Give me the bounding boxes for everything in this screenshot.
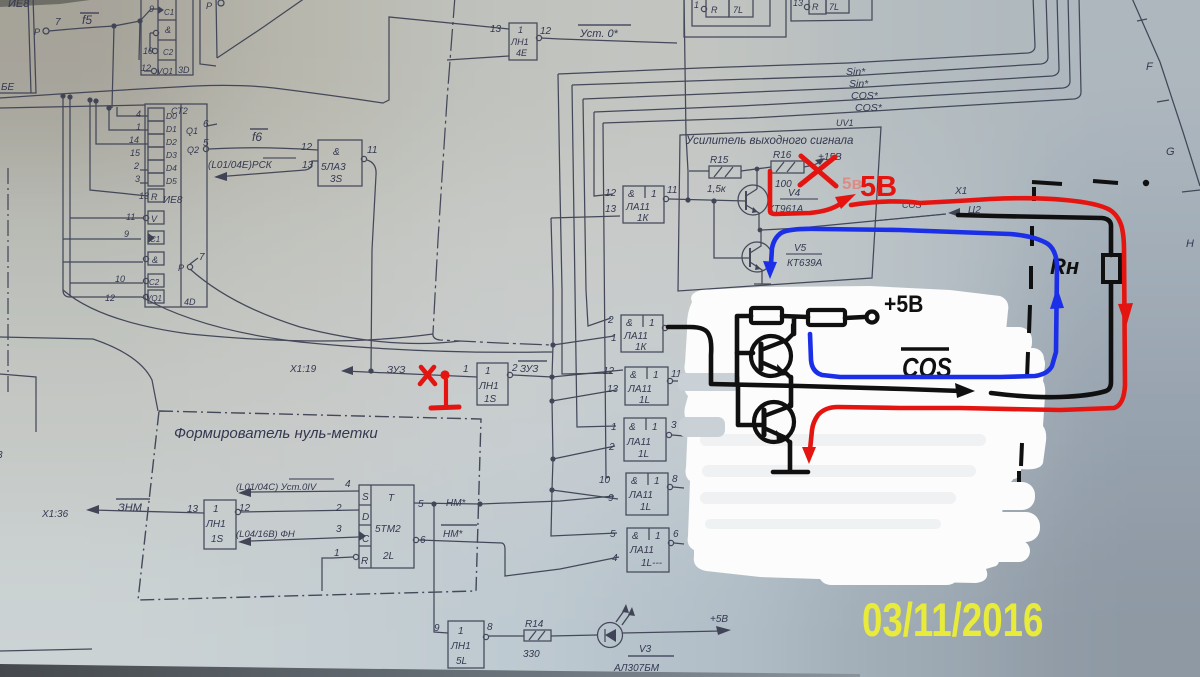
svg-text:ЗУЗ: ЗУЗ (520, 364, 538, 375)
svg-text:COS*: COS* (855, 102, 883, 114)
svg-text:UV1: UV1 (836, 118, 854, 128)
svg-text:1: 1 (463, 364, 469, 375)
svg-text:7L: 7L (733, 5, 743, 15)
svg-text:X1: X1 (954, 186, 967, 197)
svg-text:1: 1 (334, 548, 340, 559)
svg-text:3S: 3S (330, 174, 343, 185)
svg-text:12: 12 (540, 26, 552, 37)
svg-text:Формирователь нуль-метки: Формирователь нуль-метки (174, 425, 378, 442)
svg-text:1L: 1L (638, 449, 649, 460)
svg-text:+5В: +5В (710, 614, 728, 625)
svg-text:1S: 1S (211, 534, 224, 545)
svg-text:ЛН1: ЛН1 (205, 519, 226, 530)
svg-text:5L: 5L (456, 656, 467, 667)
svg-text:Sin*: Sin* (849, 78, 869, 90)
svg-text:1S: 1S (484, 394, 497, 405)
svg-text:C: C (362, 534, 370, 545)
svg-text:СТ2: СТ2 (171, 106, 188, 116)
svg-text:ЛН1: ЛН1 (450, 641, 471, 652)
svg-text:14: 14 (129, 135, 139, 145)
svg-text:10: 10 (599, 475, 611, 486)
svg-text:6: 6 (420, 535, 426, 546)
svg-text:D: D (362, 512, 369, 523)
svg-text:ЗНМ: ЗНМ (118, 502, 143, 514)
svg-text:(L01/04E)РСК: (L01/04E)РСК (208, 160, 273, 171)
svg-text:1,5к: 1,5к (707, 184, 727, 195)
svg-text:9: 9 (434, 623, 440, 634)
svg-text:&: & (629, 422, 636, 433)
svg-text:P: P (206, 1, 212, 11)
svg-text:1L: 1L (639, 395, 650, 406)
svg-text:4: 4 (136, 109, 141, 119)
svg-text:1: 1 (136, 122, 141, 132)
svg-text:12: 12 (239, 503, 251, 514)
svg-text:6: 6 (203, 119, 209, 130)
svg-text:НМ*: НМ* (446, 498, 467, 509)
svg-text:7: 7 (199, 252, 205, 263)
svg-text:X1:19: X1:19 (289, 364, 317, 375)
svg-text:G: G (1166, 146, 1175, 158)
svg-text:3: 3 (336, 524, 342, 535)
svg-text:R16: R16 (773, 150, 792, 161)
svg-text:ЗУЗ: ЗУЗ (387, 365, 405, 376)
svg-text:1: 1 (652, 422, 658, 433)
svg-text:ЛН1: ЛН1 (478, 381, 499, 392)
svg-text:V3: V3 (639, 644, 652, 655)
svg-text:1К: 1К (637, 213, 650, 224)
svg-text:11: 11 (367, 145, 377, 156)
svg-text:D5: D5 (166, 176, 177, 186)
svg-text:3: 3 (671, 420, 677, 431)
svg-text:1: 1 (649, 318, 655, 329)
svg-text:&: & (165, 25, 171, 35)
svg-text:VQ1: VQ1 (157, 67, 173, 76)
svg-text:R: R (361, 556, 368, 567)
svg-text:D2: D2 (166, 137, 177, 147)
svg-text:2: 2 (133, 161, 139, 171)
svg-text:5в: 5в (842, 174, 862, 193)
svg-text:ИЕ8: ИЕ8 (163, 195, 183, 206)
svg-text:2: 2 (607, 315, 614, 326)
svg-text:R15: R15 (710, 155, 729, 166)
svg-text:7L: 7L (829, 2, 839, 12)
svg-text:1: 1 (654, 476, 660, 487)
svg-text:C1: C1 (164, 8, 174, 17)
svg-text:VQ1: VQ1 (146, 294, 162, 303)
svg-text:12: 12 (141, 63, 151, 73)
svg-text:H: H (1186, 238, 1194, 250)
svg-text:D1: D1 (166, 124, 177, 134)
svg-text:9: 9 (149, 4, 154, 14)
svg-text:4Е: 4Е (516, 48, 528, 58)
svg-text:D3: D3 (166, 150, 177, 160)
svg-text:10: 10 (143, 46, 153, 56)
svg-text:12: 12 (603, 366, 615, 377)
svg-text:Уст. 0*: Уст. 0* (579, 28, 619, 40)
svg-text:13: 13 (793, 0, 803, 8)
svg-text:15: 15 (130, 148, 141, 158)
svg-text:&: & (628, 189, 635, 200)
svg-text:&: & (333, 147, 340, 158)
svg-text:2L: 2L (382, 551, 394, 562)
svg-text:f5: f5 (82, 13, 92, 27)
svg-text:V5: V5 (794, 243, 807, 254)
svg-text:&: & (626, 318, 633, 329)
svg-text:10: 10 (115, 274, 125, 284)
svg-text:ЛН1: ЛН1 (510, 37, 529, 47)
svg-text:3: 3 (135, 174, 140, 184)
svg-text:C1: C1 (150, 235, 160, 244)
svg-text:2: 2 (608, 442, 615, 453)
svg-text:13: 13 (490, 24, 502, 35)
svg-text:НМ*: НМ* (443, 529, 464, 540)
svg-text:3: 3 (0, 450, 3, 461)
svg-text:(L04/16В) ФН: (L04/16В) ФН (236, 529, 295, 540)
svg-text:1L---: 1L--- (641, 558, 663, 569)
svg-text:ЛА11: ЛА11 (626, 437, 651, 448)
svg-text:БЕ: БЕ (1, 82, 15, 93)
svg-text:АЛ307БМ: АЛ307БМ (613, 663, 660, 674)
svg-text:9: 9 (608, 493, 614, 504)
svg-text:9: 9 (124, 229, 129, 239)
svg-text:V: V (151, 214, 158, 224)
svg-text:03/11/2016: 03/11/2016 (862, 594, 1043, 646)
svg-text:1: 1 (651, 189, 657, 200)
svg-text:1: 1 (213, 504, 219, 515)
svg-text:ИЕ8: ИЕ8 (8, 0, 30, 10)
svg-text:R: R (151, 192, 158, 202)
svg-text:3D: 3D (178, 65, 190, 75)
svg-text:330: 330 (523, 649, 540, 660)
svg-text:(L01/04C) Уст.0IV: (L01/04C) Уст.0IV (236, 482, 318, 493)
svg-text:ЛА11: ЛА11 (625, 202, 650, 213)
svg-text:Q2: Q2 (187, 145, 199, 155)
svg-text:8: 8 (672, 474, 678, 485)
svg-text:C2: C2 (149, 278, 160, 287)
svg-text:4: 4 (612, 553, 618, 564)
svg-text:13: 13 (607, 384, 619, 395)
svg-text:S: S (362, 492, 369, 503)
svg-text:X1:36: X1:36 (41, 509, 69, 520)
svg-text:8: 8 (487, 622, 493, 633)
svg-text:5: 5 (418, 499, 424, 510)
svg-text:5: 5 (203, 138, 209, 149)
svg-text:f6: f6 (252, 130, 262, 144)
svg-text:12: 12 (301, 142, 313, 153)
svg-text:1L: 1L (640, 502, 651, 513)
svg-text:&: & (152, 255, 158, 265)
svg-text:2: 2 (511, 363, 518, 374)
svg-text:ЛА11: ЛА11 (629, 545, 654, 556)
svg-text:Sin*: Sin* (846, 66, 866, 78)
svg-text:12: 12 (105, 293, 115, 303)
svg-text:5B: 5B (860, 171, 897, 203)
svg-text:13: 13 (187, 504, 199, 515)
svg-text:V4: V4 (788, 188, 801, 199)
svg-text:1К: 1К (635, 342, 648, 353)
svg-text:ЛА11: ЛА11 (628, 490, 653, 501)
svg-text:C2: C2 (163, 48, 174, 57)
svg-text:7: 7 (55, 17, 61, 28)
svg-text:P: P (34, 27, 40, 37)
svg-text:&: & (632, 531, 639, 542)
svg-text:&: & (630, 370, 637, 381)
svg-text:COS*: COS* (851, 90, 879, 102)
svg-text:КТ639А: КТ639А (787, 258, 823, 269)
svg-text:5ТМ2: 5ТМ2 (375, 524, 401, 535)
svg-text:R: R (711, 5, 718, 15)
svg-text:Т: Т (388, 493, 395, 504)
svg-text:1: 1 (655, 531, 661, 542)
svg-text:2: 2 (335, 503, 342, 514)
svg-text:13: 13 (605, 204, 617, 215)
svg-text:1: 1 (611, 422, 617, 433)
svg-text:+5В: +5В (884, 291, 923, 318)
svg-text:1: 1 (694, 0, 699, 10)
svg-text:&: & (631, 476, 638, 487)
svg-text:1: 1 (458, 626, 464, 637)
svg-text:6: 6 (673, 529, 679, 540)
svg-text:R: R (812, 2, 819, 12)
svg-text:5ЛА3: 5ЛА3 (321, 162, 346, 173)
svg-text:D4: D4 (166, 163, 177, 173)
svg-text:1: 1 (518, 25, 523, 35)
svg-text:Усилитель выходного сигнала: Усилитель выходного сигнала (685, 135, 853, 147)
svg-text:ЛА11: ЛА11 (627, 384, 652, 395)
svg-text:1: 1 (485, 366, 491, 377)
svg-text:R14: R14 (525, 619, 544, 630)
svg-text:1: 1 (611, 333, 617, 344)
svg-text:1: 1 (653, 370, 659, 381)
svg-text:4D: 4D (184, 297, 196, 307)
svg-text:5: 5 (610, 529, 616, 540)
svg-text:P: P (178, 263, 184, 273)
svg-text:11: 11 (126, 212, 135, 222)
svg-text:4: 4 (345, 479, 351, 490)
svg-text:11: 11 (667, 185, 677, 196)
svg-text:Q1: Q1 (186, 126, 198, 136)
svg-text:12: 12 (605, 188, 617, 199)
svg-text:ЛА11: ЛА11 (623, 331, 648, 342)
svg-text:13: 13 (302, 160, 314, 171)
svg-text:13: 13 (139, 191, 149, 201)
